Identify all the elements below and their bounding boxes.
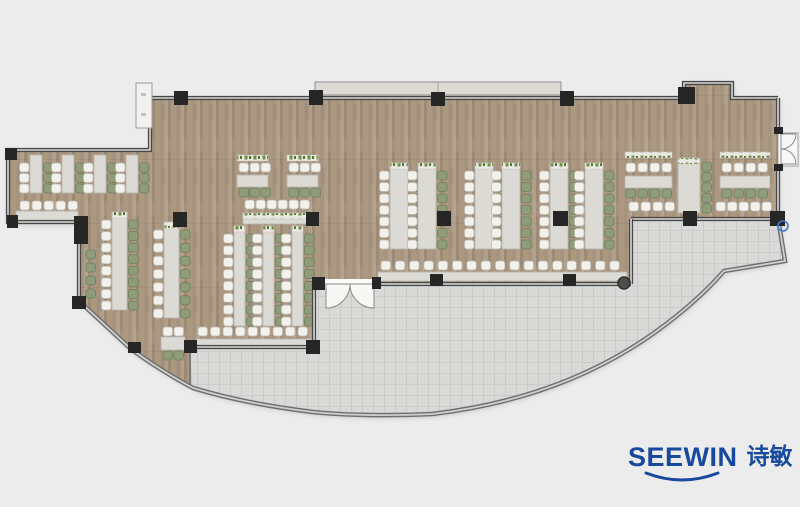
chair-white (465, 194, 475, 203)
chair-white (224, 317, 234, 326)
chair-white (722, 163, 732, 172)
chair-white (380, 217, 390, 226)
chair-white (224, 305, 234, 314)
chair-green (86, 263, 96, 272)
chair-white (575, 217, 585, 226)
chair-white (211, 327, 221, 336)
planter-box (390, 163, 408, 169)
chair-white (102, 289, 112, 298)
chair-green (250, 188, 260, 197)
column (683, 211, 697, 226)
chair-white (553, 261, 563, 270)
chair-white (492, 171, 502, 180)
column (128, 342, 141, 353)
chair-green (129, 289, 139, 298)
chair-green (662, 189, 672, 198)
chair-white (102, 278, 112, 287)
column (553, 211, 568, 226)
chair-white (300, 163, 310, 172)
chair-white (408, 229, 418, 238)
chair-white (102, 243, 112, 252)
long-table (126, 155, 138, 193)
table (378, 272, 627, 281)
chair-white (465, 183, 475, 192)
chair-white (267, 200, 277, 209)
chair-white (253, 293, 263, 302)
chair-green (522, 240, 532, 249)
chair-white (198, 327, 208, 336)
long-table (263, 226, 274, 326)
chair-green (181, 283, 191, 292)
column (430, 274, 443, 286)
chair-white (154, 296, 164, 305)
chair-white (239, 163, 249, 172)
chair-white (575, 206, 585, 215)
chair-white (20, 201, 30, 210)
chair-green (86, 276, 96, 285)
chair-green (140, 174, 150, 183)
chair-white (540, 183, 550, 192)
chair-white (762, 202, 772, 211)
column (184, 340, 197, 353)
table (625, 176, 672, 188)
chair-green (174, 351, 184, 360)
chair-white (102, 220, 112, 229)
column (74, 216, 88, 244)
chair-white (224, 270, 234, 279)
chair-white (575, 194, 585, 203)
chair-white (380, 183, 390, 192)
chair-white (278, 200, 288, 209)
chair-white (250, 163, 260, 172)
chair-white (381, 261, 391, 270)
brand-smile-swash (643, 471, 721, 484)
chair-white (282, 317, 292, 326)
chair-white (380, 206, 390, 215)
chair-white (236, 327, 246, 336)
chair-green (522, 171, 532, 180)
chair-white (282, 234, 292, 243)
long-table (418, 163, 436, 249)
chair-green (181, 256, 191, 265)
column (774, 127, 783, 134)
chair-white (567, 261, 577, 270)
planter-box (585, 163, 603, 169)
planter-box (625, 152, 672, 158)
chair-white (289, 163, 299, 172)
chair-green (734, 189, 744, 198)
chair-green (129, 220, 139, 229)
column (306, 340, 320, 354)
long-table (30, 155, 42, 193)
long-table (94, 155, 106, 193)
chair-green (305, 234, 315, 243)
chair-white (20, 184, 30, 193)
chair-white (408, 206, 418, 215)
chair-green (129, 232, 139, 241)
chair-green (722, 189, 732, 198)
chair-green (605, 206, 615, 215)
chair-white (540, 206, 550, 215)
column (7, 215, 18, 228)
floor-plan-svg (0, 0, 800, 507)
planter-box (237, 155, 268, 161)
chair-green (261, 188, 271, 197)
chair-white (665, 202, 675, 211)
chair-white (311, 163, 321, 172)
chair-white (154, 243, 164, 252)
brand-wordmark: SEEWIN (628, 444, 738, 471)
chair-green (522, 217, 532, 226)
chair-white (540, 194, 550, 203)
chair-white (102, 266, 112, 275)
chair-white (20, 174, 30, 183)
chair-white (626, 163, 636, 172)
long-table (112, 212, 127, 310)
chair-white (224, 281, 234, 290)
chair-green (300, 188, 310, 197)
chair-green (650, 189, 660, 198)
chair-green (181, 230, 191, 239)
brand-name-chinese: 诗敏 (747, 446, 793, 469)
chair-green (181, 243, 191, 252)
chair-white (256, 200, 266, 209)
column (678, 87, 695, 104)
chair-white (289, 200, 299, 209)
chair-green (129, 301, 139, 310)
wall-fixture (136, 83, 152, 128)
chair-green (605, 171, 615, 180)
chair-white (282, 258, 292, 267)
chair-white (273, 327, 283, 336)
chair-white (224, 258, 234, 267)
chair-white (154, 256, 164, 265)
chair-white (758, 163, 768, 172)
chair-green (129, 243, 139, 252)
chair-white (524, 261, 534, 270)
chair-white (56, 201, 66, 210)
chair-green (638, 189, 648, 198)
chair-white (102, 232, 112, 241)
chair-green (438, 171, 448, 180)
chair-white (116, 184, 126, 193)
chair-green (86, 289, 96, 298)
chair-white (261, 327, 271, 336)
chair-white (581, 261, 591, 270)
chair-white (662, 163, 672, 172)
planter-box (678, 158, 700, 164)
planter-box (550, 163, 568, 169)
chair-white (492, 229, 502, 238)
chair-white (540, 229, 550, 238)
chair-green (181, 309, 191, 318)
chair-green (181, 296, 191, 305)
round-column (618, 277, 630, 289)
chair-white (52, 163, 62, 172)
chair-white (380, 194, 390, 203)
column (770, 211, 785, 226)
chair-white (734, 163, 744, 172)
column (560, 91, 574, 106)
chair-white (253, 317, 263, 326)
chair-white (540, 171, 550, 180)
chair-white (395, 261, 405, 270)
chair-white (253, 234, 263, 243)
chair-green (438, 240, 448, 249)
planter-box (720, 152, 770, 158)
chair-green (626, 189, 636, 198)
chair-white (492, 217, 502, 226)
chair-white (596, 261, 606, 270)
chair-green (522, 229, 532, 238)
column (72, 296, 86, 309)
floorplan-canvas: SEEWIN 诗敏 (0, 0, 800, 507)
planter-box (243, 213, 311, 219)
chair-white (261, 163, 271, 172)
table (678, 158, 700, 213)
table (161, 337, 185, 350)
chair-green (522, 206, 532, 215)
chair-white (408, 240, 418, 249)
chair-white (163, 327, 173, 336)
chair-white (253, 305, 263, 314)
chair-green (605, 229, 615, 238)
chair-green (86, 250, 96, 259)
chair-white (408, 217, 418, 226)
table (720, 176, 770, 188)
chair-white (453, 261, 463, 270)
chair-white (154, 309, 164, 318)
chair-green (746, 189, 756, 198)
chair-green (605, 183, 615, 192)
planter-box (475, 163, 493, 169)
long-table (292, 226, 303, 326)
chair-green (129, 278, 139, 287)
chair-white (224, 293, 234, 302)
chair-white (84, 163, 94, 172)
chair-green (702, 194, 712, 203)
chair-white (174, 327, 184, 336)
table (16, 211, 78, 221)
chair-white (253, 270, 263, 279)
chair-white (282, 246, 292, 255)
chair-white (467, 261, 477, 270)
column (309, 90, 323, 105)
column (312, 277, 325, 290)
chair-green (181, 270, 191, 279)
column (173, 212, 187, 227)
chair-white (224, 246, 234, 255)
table (287, 175, 318, 187)
long-table (585, 163, 603, 249)
chair-white (492, 206, 502, 215)
column (306, 212, 319, 226)
column (774, 164, 783, 171)
chair-white (481, 261, 491, 270)
chair-white (102, 255, 112, 264)
column (174, 91, 188, 105)
chair-white (68, 201, 78, 210)
chair-white (424, 261, 434, 270)
chair-white (154, 230, 164, 239)
chair-white (716, 202, 726, 211)
chair-white (610, 261, 620, 270)
chair-white (641, 202, 651, 211)
chair-white (495, 261, 505, 270)
chair-white (751, 202, 761, 211)
chair-white (575, 240, 585, 249)
long-table (502, 163, 520, 249)
chair-green (140, 184, 150, 193)
chair-white (282, 281, 292, 290)
planter-box (418, 163, 436, 169)
chair-white (465, 206, 475, 215)
planter-box (292, 226, 303, 232)
chair-green (289, 188, 299, 197)
table (237, 175, 268, 187)
long-table (550, 163, 568, 249)
chair-white (44, 201, 54, 210)
chair-white (154, 270, 164, 279)
chair-white (102, 301, 112, 310)
long-table (62, 155, 74, 193)
chair-white (298, 327, 308, 336)
chair-white (492, 240, 502, 249)
long-table (164, 222, 179, 318)
chair-white (20, 163, 30, 172)
chair-white (653, 202, 663, 211)
chair-white (282, 305, 292, 314)
chair-white (52, 184, 62, 193)
planter-box (263, 226, 274, 232)
chair-white (540, 217, 550, 226)
chair-white (465, 171, 475, 180)
chair-white (575, 229, 585, 238)
chair-green (702, 162, 712, 171)
column (431, 92, 445, 106)
chair-white (465, 240, 475, 249)
chair-white (408, 194, 418, 203)
chair-white (728, 202, 738, 211)
chair-green (438, 183, 448, 192)
chair-green (702, 204, 712, 213)
chair-white (300, 200, 310, 209)
column (372, 277, 381, 289)
chair-white (282, 293, 292, 302)
chair-white (84, 184, 94, 193)
chair-green (605, 194, 615, 203)
chair-white (84, 174, 94, 183)
chair-white (223, 327, 233, 336)
chair-white (248, 327, 258, 336)
chair-green (140, 163, 150, 172)
long-table (234, 226, 245, 326)
chair-white (408, 183, 418, 192)
chair-green (758, 189, 768, 198)
chair-white (638, 163, 648, 172)
column (563, 274, 576, 286)
chair-white (540, 240, 550, 249)
long-table (390, 163, 408, 249)
chair-white (465, 217, 475, 226)
long-table (475, 163, 493, 249)
chair-white (465, 229, 475, 238)
chair-white (538, 261, 548, 270)
planter-box (502, 163, 520, 169)
chair-green (305, 258, 315, 267)
chair-green (129, 266, 139, 275)
chair-white (492, 194, 502, 203)
column (5, 148, 17, 160)
chair-white (253, 258, 263, 267)
fixture-detail (141, 93, 146, 96)
chair-white (410, 261, 420, 270)
chair-green (163, 351, 173, 360)
chair-white (629, 202, 639, 211)
chair-green (438, 229, 448, 238)
chair-white (408, 171, 418, 180)
chair-white (116, 174, 126, 183)
chair-white (52, 174, 62, 183)
chair-white (510, 261, 520, 270)
chair-white (380, 229, 390, 238)
chair-white (245, 200, 255, 209)
chair-green (522, 194, 532, 203)
chair-green (239, 188, 249, 197)
planter-box (112, 212, 127, 218)
chair-white (380, 240, 390, 249)
chair-white (224, 234, 234, 243)
brand-logo: SEEWIN 诗敏 (628, 444, 793, 471)
chair-white (282, 270, 292, 279)
chair-white (438, 261, 448, 270)
chair-white (380, 171, 390, 180)
chair-green (605, 217, 615, 226)
chair-green (702, 183, 712, 192)
chair-white (253, 246, 263, 255)
chair-white (739, 202, 749, 211)
chair-white (650, 163, 660, 172)
column (437, 211, 451, 226)
chair-white (575, 171, 585, 180)
planter-box (234, 226, 245, 232)
chair-green (311, 188, 321, 197)
chair-green (129, 255, 139, 264)
chair-white (32, 201, 42, 210)
chair-green (702, 173, 712, 182)
planter-box (287, 155, 318, 161)
chair-white (154, 283, 164, 292)
chair-white (116, 163, 126, 172)
chair-green (305, 246, 315, 255)
chair-white (746, 163, 756, 172)
fixture-detail (141, 113, 146, 116)
chair-white (253, 281, 263, 290)
chair-white (492, 183, 502, 192)
chair-green (605, 240, 615, 249)
chair-white (575, 183, 585, 192)
chair-green (438, 194, 448, 203)
chair-white (286, 327, 296, 336)
chair-green (522, 183, 532, 192)
